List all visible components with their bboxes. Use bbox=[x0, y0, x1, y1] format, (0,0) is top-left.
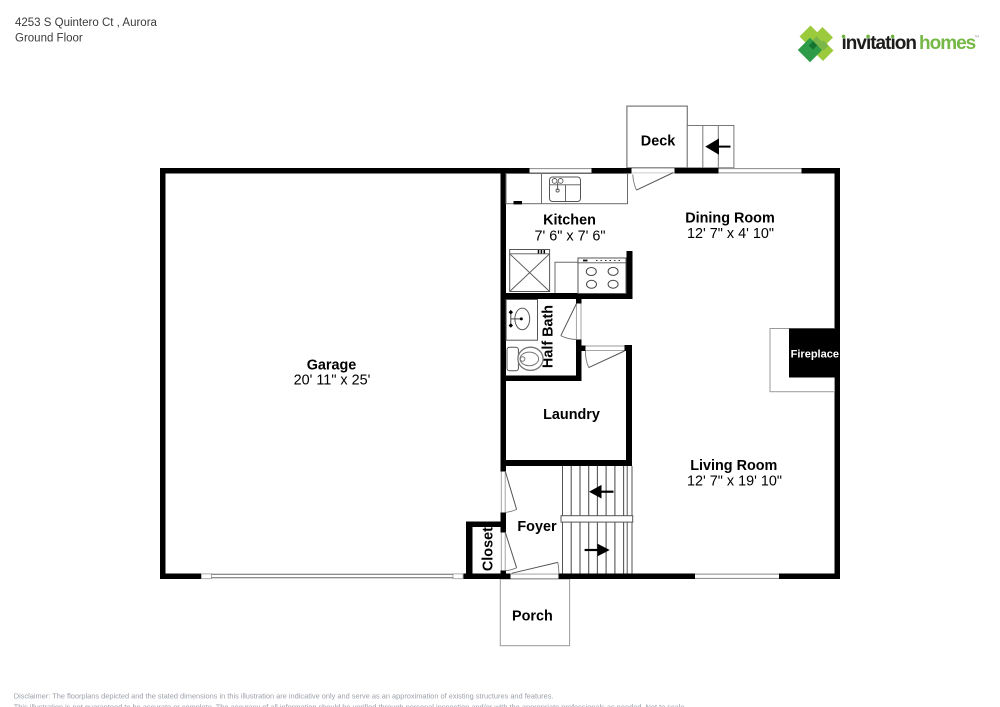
svg-text:12' 7" x 19' 10": 12' 7" x 19' 10" bbox=[687, 473, 782, 489]
svg-text:Foyer: Foyer bbox=[517, 519, 557, 535]
svg-text:ınvıtatıon: ınvıtatıon bbox=[842, 33, 917, 54]
svg-text:4253 S Quintero Ct , Aurora: 4253 S Quintero Ct , Aurora bbox=[15, 17, 158, 29]
svg-text:12' 7" x 4' 10": 12' 7" x 4' 10" bbox=[687, 226, 774, 242]
svg-text:Kitchen: Kitchen bbox=[543, 213, 596, 229]
svg-text:Living Room: Living Room bbox=[690, 458, 777, 474]
svg-text:20' 11" x 25': 20' 11" x 25' bbox=[294, 372, 371, 388]
svg-text:Laundry: Laundry bbox=[543, 407, 600, 423]
svg-text:Dining Room: Dining Room bbox=[685, 210, 775, 226]
svg-text:Deck: Deck bbox=[641, 134, 676, 150]
svg-text:Ground Floor: Ground Floor bbox=[15, 33, 83, 45]
svg-text:Disclaimer: The floorplans dep: Disclaimer: The floorplans depicted and … bbox=[14, 691, 554, 700]
svg-text:Garage: Garage bbox=[307, 357, 357, 373]
svg-text:™: ™ bbox=[974, 35, 980, 41]
svg-text:Fireplace: Fireplace bbox=[791, 349, 839, 361]
svg-text:This illustration is not guara: This illustration is not guaranteed to b… bbox=[14, 703, 687, 707]
svg-text:Porch: Porch bbox=[512, 608, 553, 624]
svg-text:homes: homes bbox=[919, 33, 976, 54]
svg-text:7' 6" x 7' 6": 7' 6" x 7' 6" bbox=[535, 228, 606, 244]
svg-text:Closet: Closet bbox=[480, 527, 496, 571]
